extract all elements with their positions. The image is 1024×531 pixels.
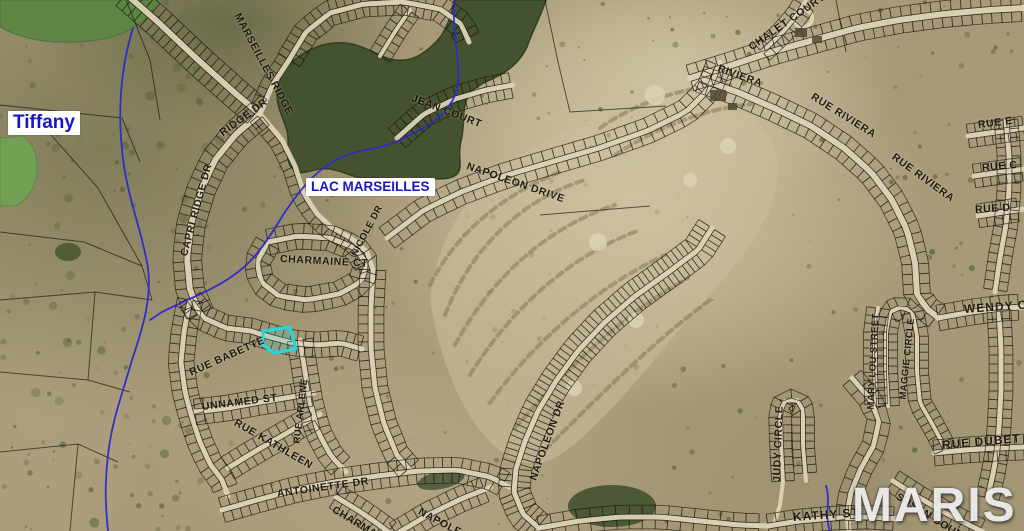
pond-left (0, 136, 37, 206)
highlight-layer (263, 327, 296, 353)
street-label-rue-d: RUE D (975, 202, 1011, 216)
maris-watermark: MARIS (852, 478, 1017, 531)
highlighted-parcel[interactable] (263, 327, 296, 353)
golf-course (430, 77, 778, 463)
map-graphics (0, 0, 1024, 531)
lake-label-lac-marseilles: LAC MARSEILLES (306, 178, 435, 196)
map-canvas[interactable]: Tiffany LAC MARSEILLES MARSEILLES RIDGE … (0, 0, 1024, 531)
lake-label-tiffany: Tiffany (8, 111, 80, 135)
